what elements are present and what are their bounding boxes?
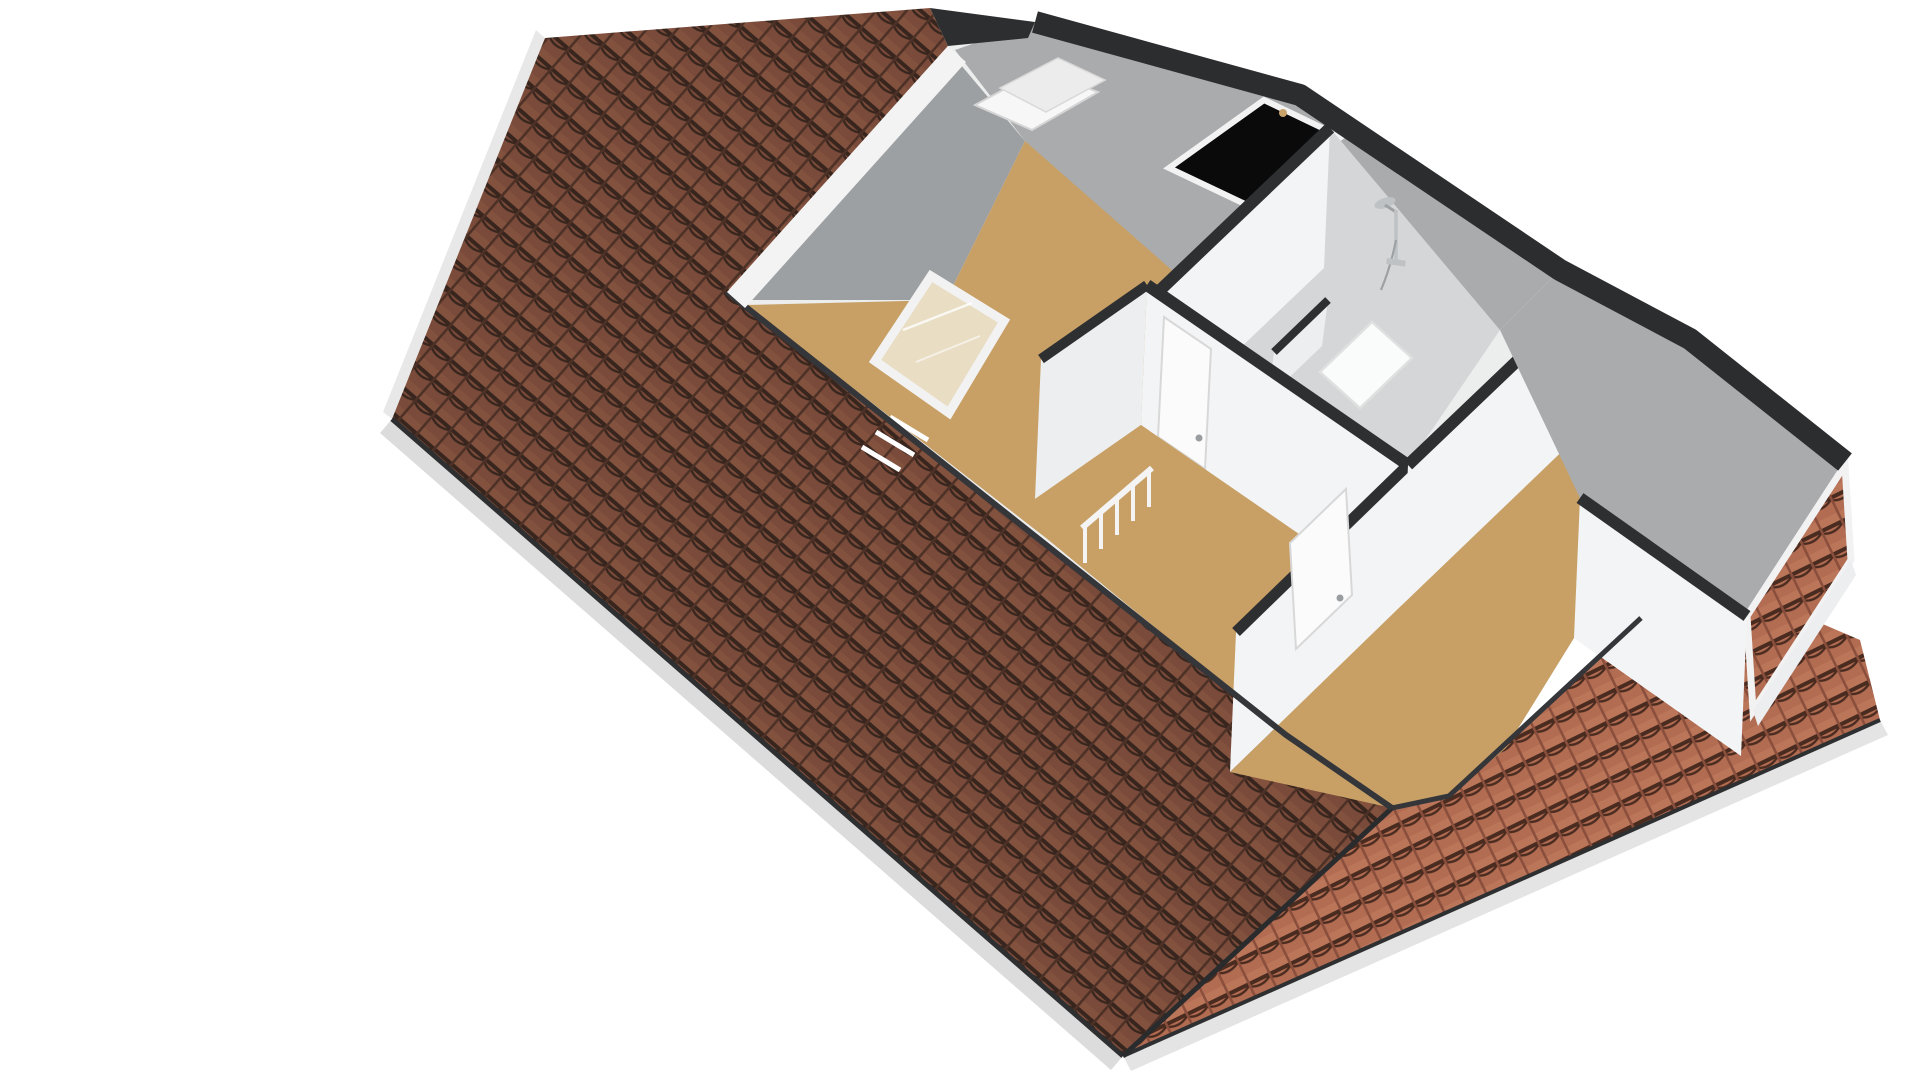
floorplan-render-canvas: [0, 0, 1920, 1080]
door-handle: [1337, 595, 1344, 602]
roof-window-hinge: [1279, 109, 1287, 117]
floorplan-3d-svg: [0, 0, 1920, 1080]
door-handle: [1196, 435, 1203, 442]
